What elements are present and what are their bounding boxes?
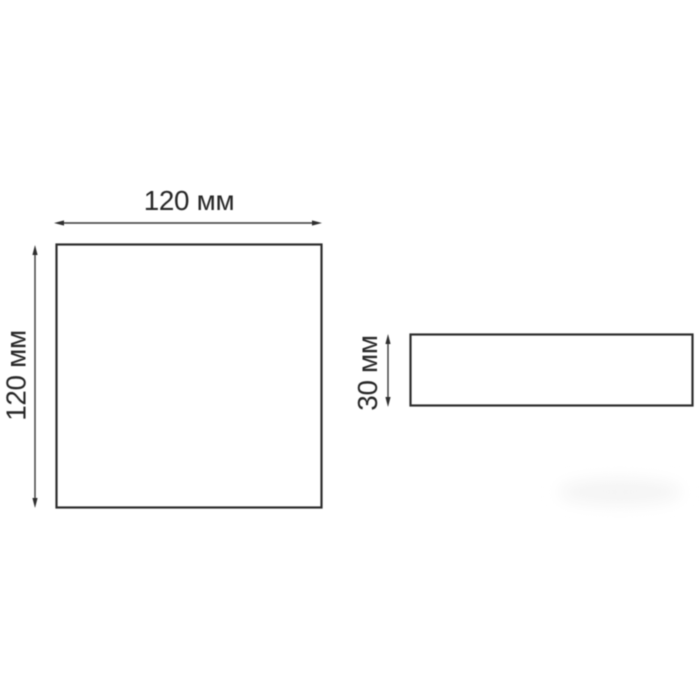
svg-text:120 мм: 120 мм [144,185,235,216]
svg-text:30 мм: 30 мм [352,335,383,410]
svg-text:120 мм: 120 мм [1,330,32,421]
